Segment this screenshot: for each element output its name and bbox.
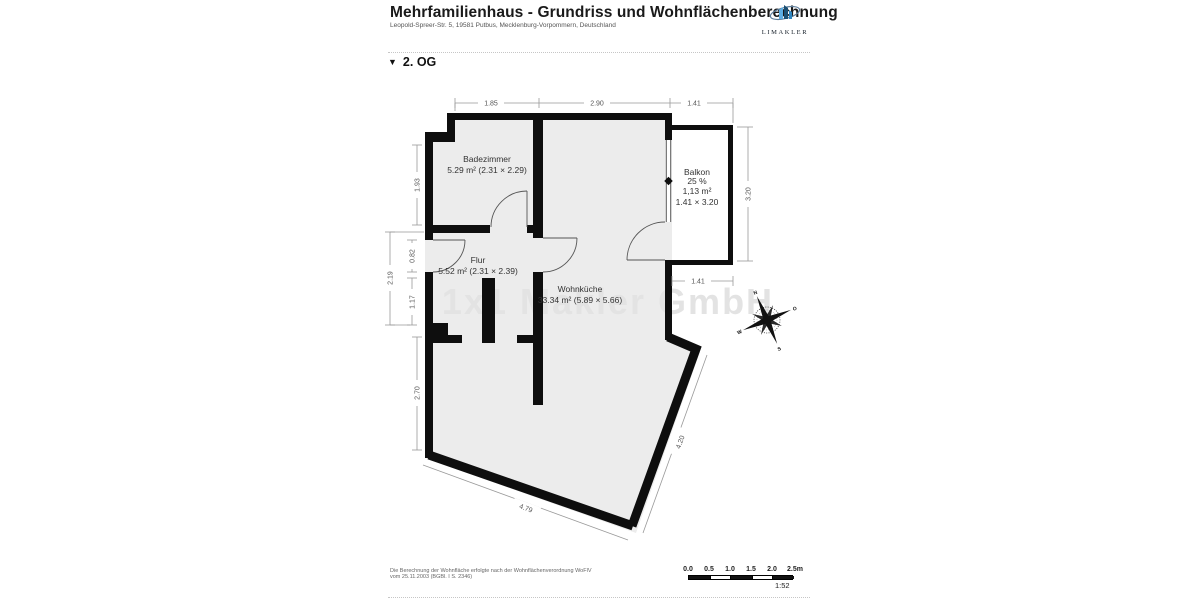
dim-top-right: 1.41 [687,101,701,108]
room-balkon-size: 1.41 × 3.20 [676,197,719,207]
scale-segment [731,576,752,579]
compass-south: S [777,346,783,353]
scale-tick-1: 0.5 [704,566,714,573]
scale-bar: 0.0 0.5 1.0 1.5 2.0 2.5m 1:52 [682,566,817,590]
scale-tick-4: 2.0 [767,566,777,573]
compass-west: W [736,329,743,336]
scale-tick-2: 1.0 [725,566,735,573]
logo-text: LIMAKLER [757,29,813,36]
dim-balcony-height: 3.20 [746,187,753,201]
logo-building-icon [757,2,813,24]
company-logo: LIMAKLER [757,2,813,32]
scale-bar-segments [688,575,793,580]
scale-tick-3: 1.5 [746,566,756,573]
room-balkon-percent: 25 % [687,176,707,186]
legal-note: Die Berechnung der Wohnfläche erfolgte n… [390,568,591,580]
scale-segment [752,576,773,579]
scale-segment [689,576,710,579]
dim-left-total: 2.19 [388,271,395,285]
floor-label: 2. OG [403,55,436,69]
divider-top [388,52,810,53]
scale-tick-0: 0.0 [683,566,693,573]
room-balkon-area: 1,13 m² [683,186,712,196]
balcony-window [664,140,672,222]
dim-left-door: 0.82 [410,249,417,263]
compass-east: O [792,306,798,313]
scale-tick-5: 2.5m [787,566,803,573]
room-flur-details: 5.52 m² (2.31 × 2.39) [438,266,518,276]
dim-left-bath: 1.93 [415,178,422,192]
dim-left-bottom: 2.70 [415,386,422,400]
dim-top-mid: 2.90 [590,101,604,108]
room-flur-name: Flur [471,255,486,265]
room-badezimmer-details: 5.29 m² (2.31 × 2.29) [447,165,527,175]
floor-section-header: ▼ 2. OG [388,55,436,69]
collapse-triangle-icon[interactable]: ▼ [388,57,397,67]
floor-plan-page: Mehrfamilienhaus - Grundriss und Wohnflä… [0,0,1200,600]
dim-left-lower: 1.17 [410,295,417,309]
scale-ratio: 1:52 [775,581,790,590]
room-wohnkueche-details: 33.34 m² (5.89 × 5.66) [538,295,623,305]
divider-bottom [388,597,810,598]
dim-balcony-width: 1.41 [691,279,705,286]
dim-top-left: 1.85 [484,101,498,108]
scale-segment [710,576,731,579]
room-wohnkueche-name: Wohnküche [558,284,603,294]
scale-segment [773,576,794,579]
room-badezimmer-name: Badezimmer [463,154,511,164]
floor-plan-drawing: 1x1 Makler GmbH [380,80,820,560]
legal-note-line2: vom 25.11.2003 (BGBl. I S. 2346) [390,574,591,580]
page-address: Leopold-Spreer-Str. 5, 19581 Putbus, Mec… [390,22,616,29]
